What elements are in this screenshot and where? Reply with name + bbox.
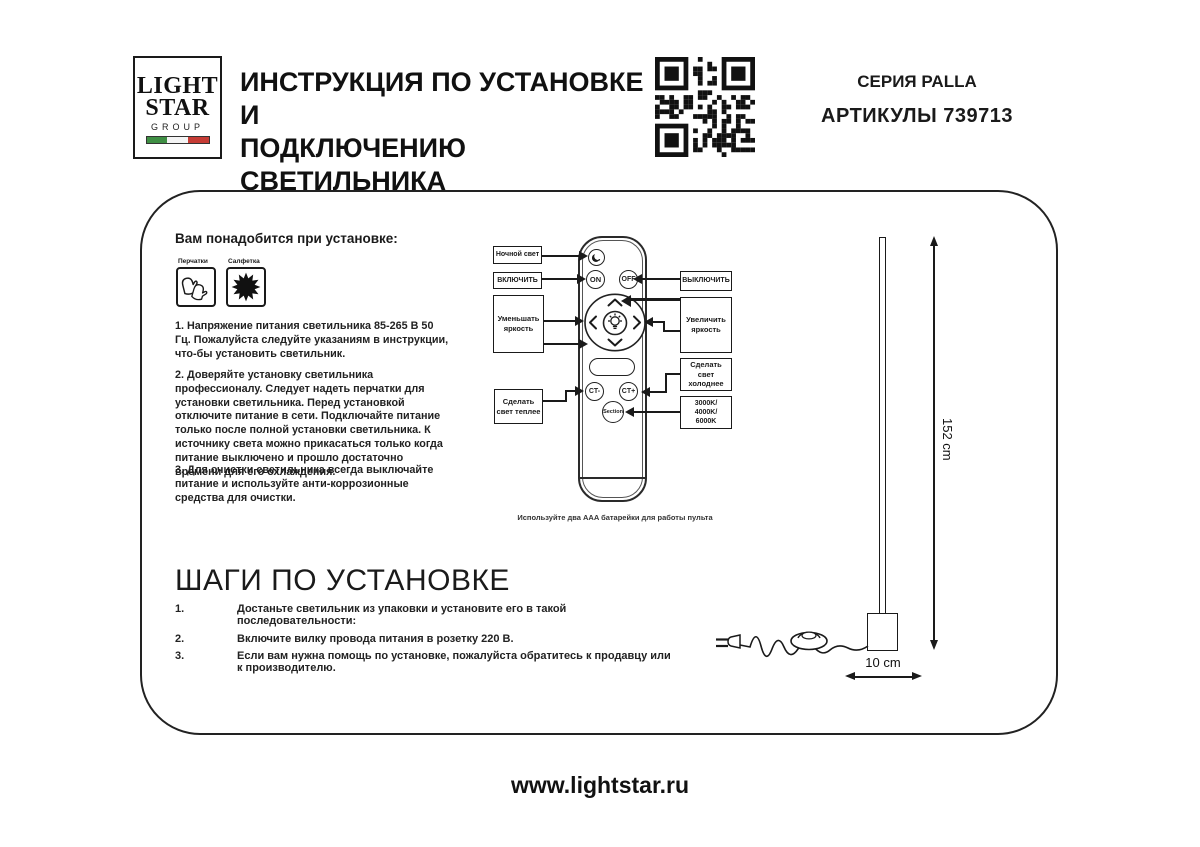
connector-line bbox=[543, 400, 567, 402]
note-paragraph-1: 1. Напряжение питания светильника 85-265… bbox=[175, 320, 451, 361]
arrowhead bbox=[621, 295, 631, 307]
ct-plus-button: CT+ bbox=[619, 382, 638, 401]
arrowhead bbox=[644, 317, 653, 327]
label-brighten: Увеличить яркость bbox=[680, 297, 732, 353]
lamp-rod bbox=[879, 237, 886, 615]
step-number: 3. bbox=[175, 650, 237, 674]
remote-dpad bbox=[584, 293, 646, 352]
lightstar-logo: LIGHT STAR GROUP bbox=[133, 56, 222, 159]
connector-line bbox=[665, 373, 667, 393]
arrowhead bbox=[625, 407, 634, 417]
product-info: СЕРИЯ PALLA АРТИКУЛЫ 739713 bbox=[812, 72, 1022, 128]
qr-code bbox=[655, 57, 755, 157]
page-title-line2: ПОДКЛЮЧЕНИЮ СВЕТИЛЬНИКА bbox=[240, 132, 660, 198]
section-button: Section bbox=[602, 401, 624, 423]
step-row: 1. Достаньте светильник из упаковки и ус… bbox=[175, 603, 675, 627]
connector-line bbox=[642, 278, 680, 280]
label-warmer: Сделать свет теплее bbox=[494, 389, 543, 424]
requirements-heading: Вам понадобится при установке: bbox=[175, 231, 398, 246]
steps-heading: ШАГИ ПО УСТАНОВКЕ bbox=[175, 564, 510, 598]
arrowhead bbox=[633, 274, 642, 284]
step-row: 3. Если вам нужна помощь по установке, п… bbox=[175, 650, 675, 674]
battery-note: Используйте два AAA батарейки для работы… bbox=[485, 513, 745, 522]
arrowhead bbox=[577, 274, 586, 284]
step-text: Если вам нужна помощь по установке, пожа… bbox=[237, 650, 675, 674]
napkin-label: Салфетка bbox=[228, 258, 260, 265]
arrowhead bbox=[575, 316, 584, 326]
logo-word-group: GROUP bbox=[151, 122, 204, 132]
instruction-sheet: LIGHT STAR GROUP ИНСТРУКЦИЯ ПО УСТАНОВКЕ… bbox=[0, 0, 1200, 847]
label-turn-off: ВЫКЛЮЧИТЬ bbox=[680, 271, 732, 291]
page-title-line1: ИНСТРУКЦИЯ ПО УСТАНОВКЕ И bbox=[240, 66, 660, 132]
ct-minus-button: CT- bbox=[585, 382, 604, 401]
label-turn-on: ВКЛЮЧИТЬ bbox=[493, 272, 542, 289]
step-text: Достаньте светильник из упаковки и устан… bbox=[237, 603, 675, 627]
napkin-icon bbox=[226, 267, 266, 307]
steps-list: 1. Достаньте светильник из упаковки и ус… bbox=[175, 603, 675, 680]
note-paragraph-2: 2. Доверяйте установку светильника профе… bbox=[175, 369, 451, 480]
connector-line bbox=[631, 298, 680, 301]
step-text: Включите вилку провода питания в розетку… bbox=[237, 633, 514, 645]
height-dimension-line bbox=[933, 243, 935, 641]
connector-line bbox=[544, 343, 580, 345]
logo-word-light: LIGHT bbox=[137, 75, 218, 97]
night-light-button bbox=[588, 249, 605, 266]
label-cooler: Сделать свет холоднее bbox=[680, 358, 732, 391]
gloves-label: Перчатки bbox=[178, 258, 208, 265]
series-label: СЕРИЯ PALLA bbox=[812, 72, 1022, 92]
step-number: 2. bbox=[175, 633, 237, 645]
moon-icon bbox=[590, 251, 603, 264]
connector-line bbox=[542, 278, 578, 280]
italian-flag-icon bbox=[146, 136, 210, 144]
step-row: 2. Включите вилку провода питания в розе… bbox=[175, 633, 675, 645]
page-title: ИНСТРУКЦИЯ ПО УСТАНОВКЕ И ПОДКЛЮЧЕНИЮ СВ… bbox=[240, 66, 660, 198]
arrowhead bbox=[579, 251, 588, 261]
arrowhead bbox=[575, 386, 584, 396]
arrowhead bbox=[930, 236, 938, 246]
arrowhead bbox=[579, 339, 588, 349]
pill-button bbox=[589, 358, 635, 376]
arrowhead bbox=[912, 672, 922, 680]
article-label: АРТИКУЛЫ 739713 bbox=[812, 105, 1022, 128]
connector-line bbox=[650, 391, 667, 393]
on-button: ON bbox=[586, 270, 605, 289]
connector-line bbox=[665, 373, 680, 375]
connector-line bbox=[542, 255, 580, 257]
logo-word-star: STAR bbox=[145, 97, 209, 119]
arrowhead bbox=[641, 387, 650, 397]
arrowhead bbox=[845, 672, 855, 680]
note-paragraph-3: 3. Для очистки светильника всегда выключ… bbox=[175, 464, 451, 505]
step-number: 1. bbox=[175, 603, 237, 627]
plug-icon bbox=[716, 635, 740, 648]
label-night-light: Ночной свет bbox=[493, 246, 542, 264]
gloves-icon bbox=[176, 267, 216, 307]
connector-line bbox=[634, 411, 680, 413]
connector-line bbox=[544, 320, 576, 322]
label-dim: Уменьшать яркость bbox=[493, 295, 544, 353]
width-dimension-label: 10 cm bbox=[853, 655, 913, 670]
foot-switch-icon bbox=[791, 632, 827, 649]
battery-cover-line bbox=[580, 477, 646, 479]
label-kelvin: 3000K/ 4000K/ 6000K bbox=[680, 396, 732, 429]
width-dimension-line bbox=[851, 676, 915, 678]
connector-line bbox=[663, 330, 680, 332]
footer-url: www.lightstar.ru bbox=[0, 772, 1200, 799]
height-dimension-label: 152 cm bbox=[940, 418, 955, 461]
arrowhead bbox=[930, 640, 938, 650]
power-cord-illustration bbox=[712, 608, 874, 660]
